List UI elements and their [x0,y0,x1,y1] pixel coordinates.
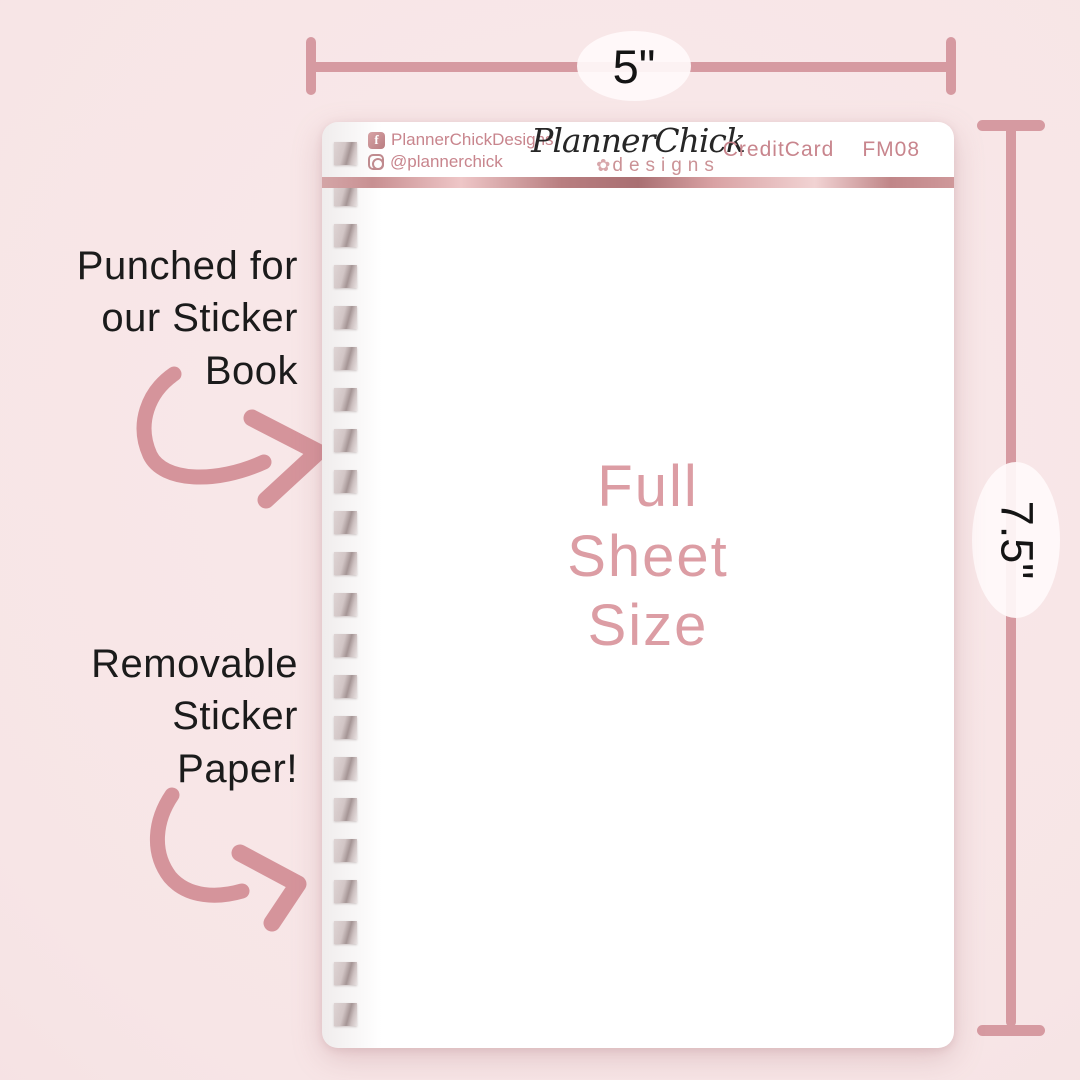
facebook-row: f PlannerChickDesigns [368,130,554,150]
punch-hole [334,306,357,329]
instagram-icon [368,154,384,170]
height-dimension-badge: 7.5" [972,462,1060,618]
width-ruler-cap-left [306,37,316,95]
product-name: CreditCard [723,138,835,162]
instagram-row: @plannerchick [368,152,554,172]
rose-gold-foil-bar [322,177,954,188]
brand-name: PlannerChick [531,124,745,157]
sticker-sheet: f PlannerChickDesigns @plannerchick Plan… [322,122,954,1048]
facebook-icon: f [368,132,385,149]
brand-subtitle-row: ✿ designs [571,155,745,177]
punch-hole [334,880,357,903]
punch-hole [334,757,357,780]
width-ruler-cap-right [946,37,956,95]
punch-hole [334,798,357,821]
punch-hole [334,347,357,370]
punch-hole [334,224,357,247]
sheet-header: f PlannerChickDesigns @plannerchick Plan… [322,122,954,177]
punch-hole [334,1003,357,1026]
facebook-handle: PlannerChickDesigns [391,130,554,150]
punch-hole [334,388,357,411]
mockup-canvas: 5" 7.5" Punched for our Sticker Book Rem… [0,0,1080,1080]
punch-hole [334,675,357,698]
punch-hole [334,265,357,288]
removable-arrow-icon [130,780,330,945]
punch-hole [334,470,357,493]
removable-note: Removable Sticker Paper! [0,638,298,795]
instagram-handle: @plannerchick [390,152,503,172]
punch-hole [334,839,357,862]
punch-hole [334,634,357,657]
flower-icon: ✿ [596,156,610,176]
height-dimension-label: 7.5" [990,501,1042,580]
punch-hole [334,429,357,452]
product-code: FM08 [862,138,920,162]
width-dimension-label: 5" [613,39,656,94]
punched-arrow-icon [130,360,340,520]
brand-logo: PlannerChick ✿ designs [531,124,745,177]
spiral-holes [334,142,358,1068]
social-links: f PlannerChickDesigns @plannerchick [368,130,554,172]
width-dimension-badge: 5" [577,31,691,101]
punch-hole [334,593,357,616]
punch-hole [334,921,357,944]
product-info: CreditCard FM08 [723,138,920,162]
brand-subtitle: designs [612,155,720,177]
punch-hole [334,716,357,739]
punch-hole [334,552,357,575]
sheet-size-label: Full Sheet Size [362,452,934,661]
punch-hole [334,962,357,985]
height-ruler-cap-top [977,120,1045,131]
punch-hole [334,511,357,534]
height-ruler-cap-bottom [977,1025,1045,1036]
